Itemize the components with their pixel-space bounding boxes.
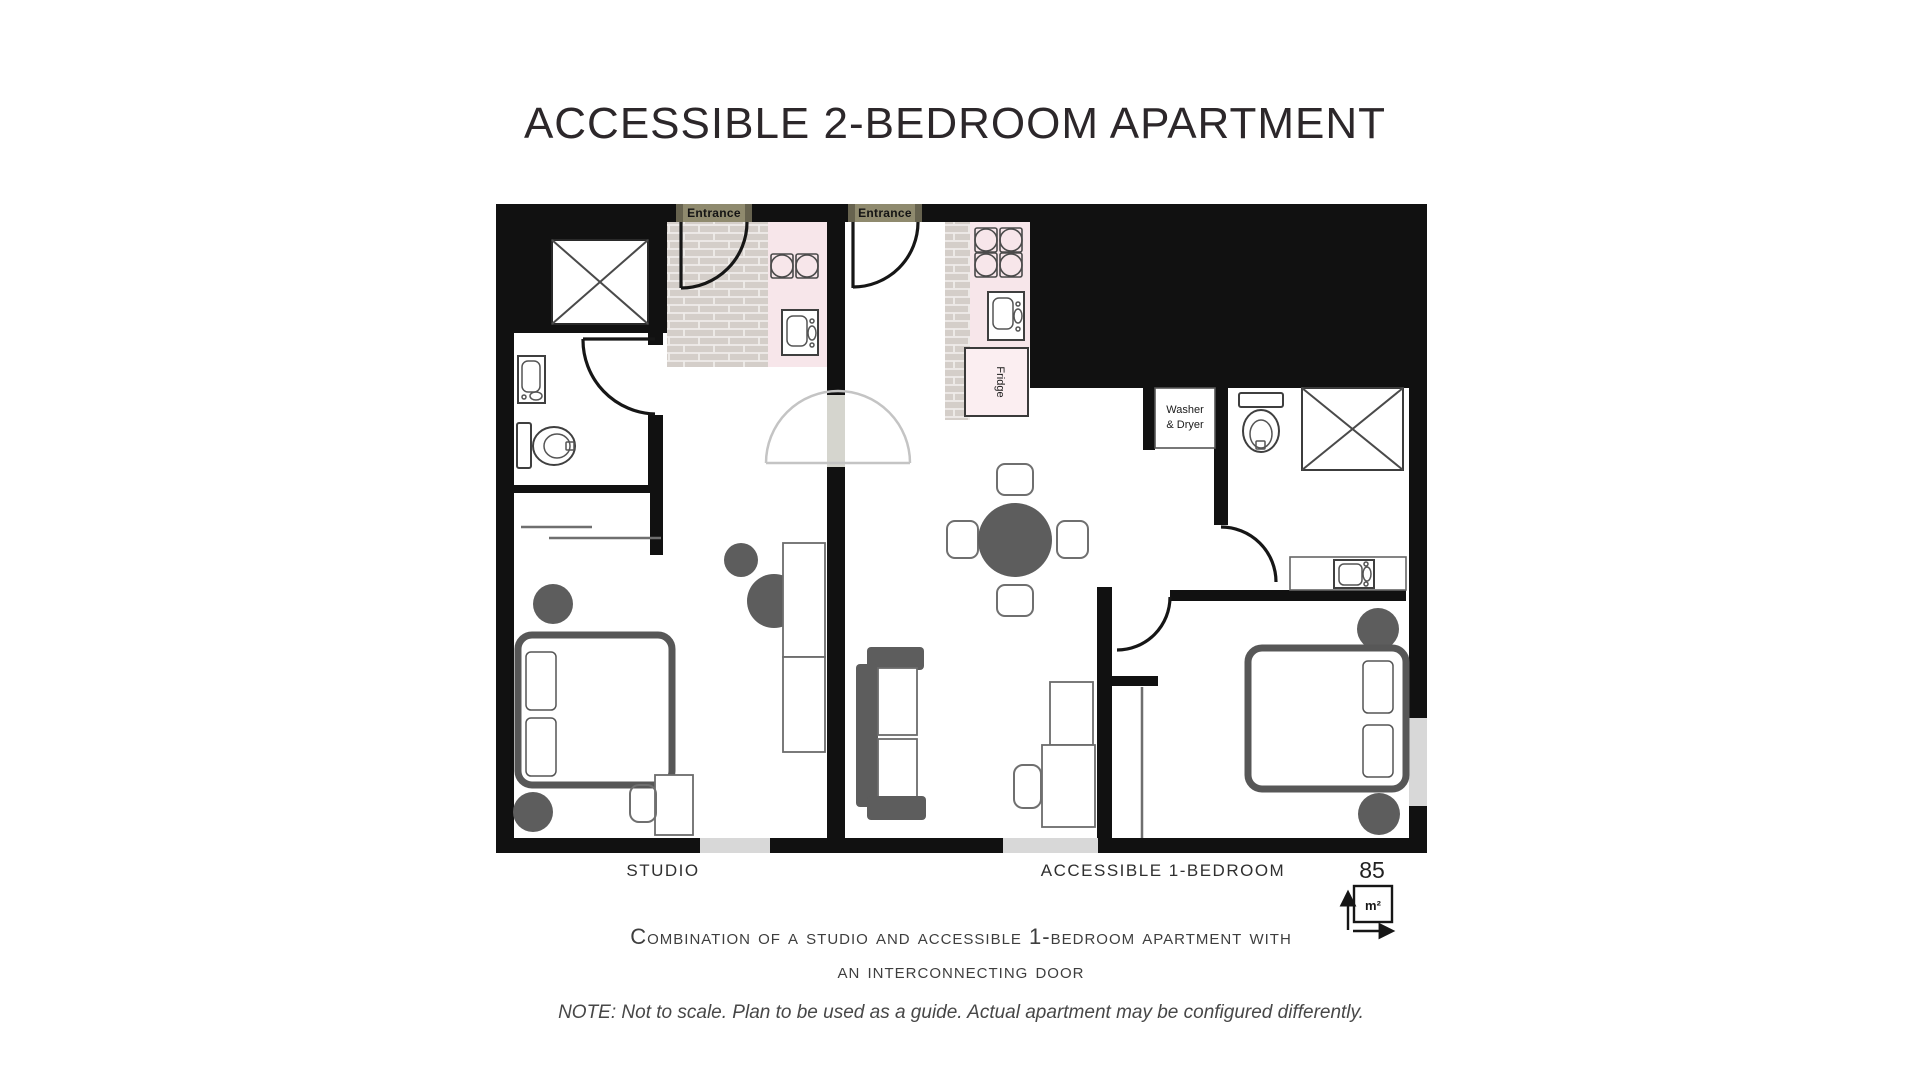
interconnecting-door-opening (827, 395, 845, 467)
unit-label-onebed: ACCESSIBLE 1-BEDROOM (1041, 861, 1285, 880)
washer-label-line1: Washer (1166, 404, 1204, 416)
shaft-shower-box (552, 240, 648, 324)
bathroom-wall (1170, 590, 1406, 601)
vanity-counter (1290, 557, 1406, 590)
wall-segment-bottom (770, 838, 1003, 853)
door-post (676, 204, 683, 222)
wall-segment-bottom (496, 838, 700, 853)
dividing-wall-lower (827, 467, 845, 838)
caption-line2: an interconnecting door (838, 958, 1085, 983)
fridge-label: Fridge (994, 366, 1006, 397)
northeast-wall-block (1030, 204, 1409, 388)
sofa-cushion (878, 668, 917, 735)
closet-wall (514, 485, 663, 493)
round-table (724, 543, 758, 577)
footer: STUDIO ACCESSIBLE 1-BEDROOM 85 m² Combin… (558, 857, 1392, 1023)
desk (1042, 745, 1095, 827)
entrance-label: Entrance (858, 206, 912, 220)
side-table (1358, 793, 1400, 835)
window (700, 838, 770, 853)
door-post (915, 204, 922, 222)
toilet-icon (517, 423, 575, 468)
note-text: NOTE: Not to scale. Plan to be used as a… (558, 1002, 1364, 1023)
studio-bed (518, 635, 672, 785)
desk (655, 775, 693, 835)
dining-table (978, 503, 1052, 577)
closet-wall (650, 493, 663, 555)
side-table (533, 584, 573, 624)
bedroom-wall (1097, 587, 1112, 838)
washer-label-line2: & Dryer (1166, 419, 1204, 431)
side-table (1357, 608, 1399, 650)
onebed-bed (1248, 648, 1406, 789)
side-table (513, 792, 553, 832)
washer-dryer: Washer & Dryer (1155, 388, 1215, 448)
kitchen-sink-icon (988, 292, 1024, 340)
unit-label-studio: STUDIO (626, 861, 699, 880)
door-post (745, 204, 752, 222)
window (1003, 838, 1098, 853)
wall-segment-right (1409, 204, 1427, 718)
wall-segment (648, 415, 663, 485)
entrance-onebed: Entrance (848, 204, 922, 222)
kitchen-sink-icon (782, 310, 818, 355)
caption-line1: Combination of a studio and accessible 1… (630, 924, 1292, 949)
fridge: Fridge (965, 348, 1028, 416)
entrance-label: Entrance (687, 206, 741, 220)
area-value: 85 (1359, 857, 1385, 883)
bathroom-sink-icon (518, 356, 545, 403)
closet-wall (1112, 676, 1158, 686)
wall-segment (1143, 388, 1155, 450)
window (1409, 718, 1427, 806)
page-title: ACCESSIBLE 2-BEDROOM APARTMENT (524, 99, 1386, 148)
door-post (848, 204, 855, 222)
dividing-wall-upper (827, 222, 845, 395)
desk (1050, 682, 1093, 745)
shower-box (1302, 388, 1403, 470)
floor-plan-canvas: ACCESSIBLE 2-BEDROOM APARTMENT (0, 0, 1919, 1080)
wall-segment-bottom (1098, 838, 1427, 853)
area-badge: 85 m² (1348, 857, 1392, 931)
shelf-unit (783, 657, 825, 752)
area-unit: m² (1365, 898, 1382, 913)
sofa-cushion (878, 739, 917, 797)
wall-segment (752, 204, 848, 222)
shelf-unit (783, 543, 825, 657)
sofa (856, 647, 926, 820)
bathroom-wall (1214, 388, 1228, 525)
toilet-icon (1239, 393, 1283, 452)
entrance-studio: Entrance (676, 204, 752, 222)
